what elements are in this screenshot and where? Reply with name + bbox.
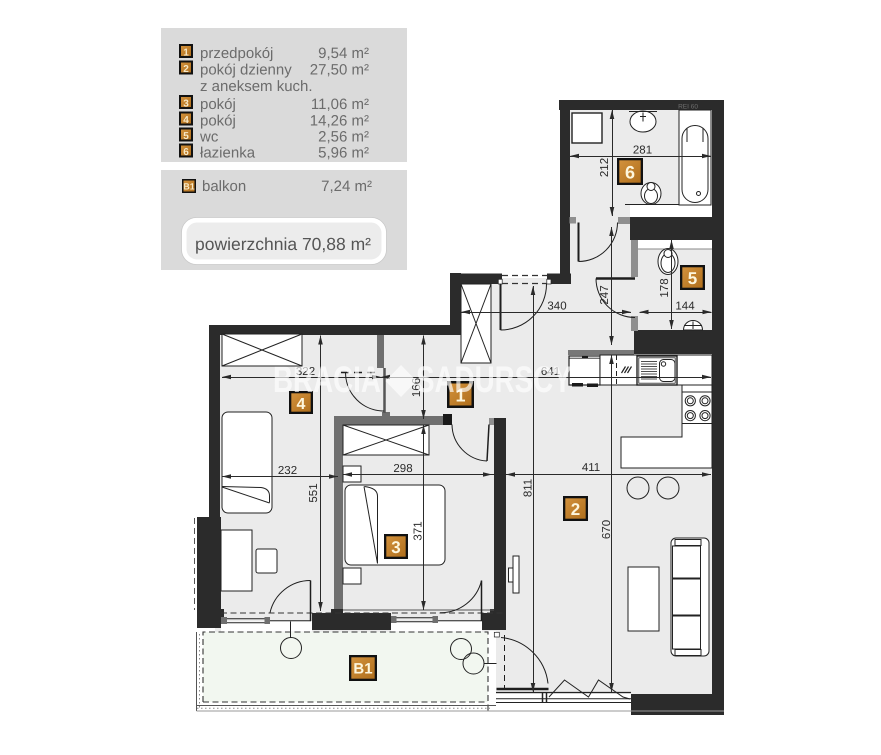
svg-text:REI 60: REI 60 bbox=[678, 104, 698, 111]
svg-text:551: 551 bbox=[308, 483, 320, 502]
svg-text:B1: B1 bbox=[353, 661, 372, 678]
svg-text:5: 5 bbox=[688, 269, 697, 288]
svg-text:pokój: pokój bbox=[200, 96, 236, 113]
svg-text:9,54 m²: 9,54 m² bbox=[318, 45, 369, 62]
svg-text:6: 6 bbox=[183, 147, 189, 158]
svg-text:5: 5 bbox=[183, 131, 189, 142]
svg-text:powierzchnia: powierzchnia bbox=[195, 234, 297, 254]
svg-text:670: 670 bbox=[601, 520, 613, 539]
svg-text:340: 340 bbox=[547, 301, 566, 313]
svg-text:178: 178 bbox=[659, 278, 671, 297]
svg-text:11,06 m²: 11,06 m² bbox=[311, 96, 369, 113]
svg-text:212: 212 bbox=[599, 158, 611, 177]
svg-text:371: 371 bbox=[413, 521, 425, 540]
svg-text:1: 1 bbox=[183, 48, 189, 59]
svg-text:2: 2 bbox=[571, 500, 580, 519]
svg-text:70,88 m²: 70,88 m² bbox=[302, 234, 371, 254]
svg-text:6: 6 bbox=[625, 163, 635, 183]
svg-text:3: 3 bbox=[183, 99, 189, 110]
svg-text:B1: B1 bbox=[183, 182, 195, 192]
svg-text:232: 232 bbox=[278, 465, 297, 477]
svg-text:z aneksem kuch.: z aneksem kuch. bbox=[200, 78, 313, 95]
svg-text:2: 2 bbox=[183, 64, 189, 75]
svg-text:3: 3 bbox=[391, 538, 400, 557]
svg-text:wc: wc bbox=[199, 129, 219, 146]
svg-text:SADURSCY: SADURSCY bbox=[416, 359, 572, 400]
svg-text:14,26 m²: 14,26 m² bbox=[310, 113, 369, 130]
svg-text:balkon: balkon bbox=[202, 178, 246, 195]
svg-text:4: 4 bbox=[183, 115, 189, 126]
svg-text:27,50 m²: 27,50 m² bbox=[310, 62, 369, 79]
svg-text:144: 144 bbox=[675, 301, 695, 313]
svg-text:pokój: pokój bbox=[200, 113, 236, 130]
svg-text:pokój dzienny: pokój dzienny bbox=[200, 62, 292, 79]
svg-text:298: 298 bbox=[393, 463, 412, 475]
svg-text:811: 811 bbox=[523, 479, 535, 497]
svg-text:411: 411 bbox=[582, 462, 600, 474]
svg-text:2,56 m²: 2,56 m² bbox=[318, 129, 369, 146]
svg-text:5,96 m²: 5,96 m² bbox=[318, 145, 369, 162]
svg-text:łazienka: łazienka bbox=[200, 145, 256, 162]
svg-text:247: 247 bbox=[599, 285, 611, 304]
svg-text:BRACIA: BRACIA bbox=[273, 359, 381, 400]
svg-text:7,24 m²: 7,24 m² bbox=[321, 178, 372, 195]
svg-text:przedpokój: przedpokój bbox=[200, 45, 273, 62]
svg-text:281: 281 bbox=[633, 145, 652, 157]
